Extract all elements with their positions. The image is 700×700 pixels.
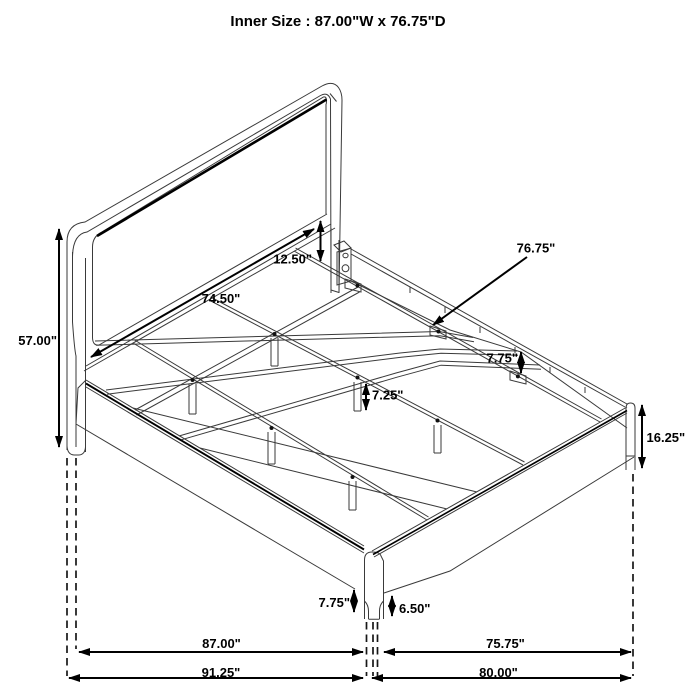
svg-text:7.75": 7.75" [487,351,518,366]
svg-text:87.00": 87.00" [202,636,241,651]
svg-text:Inner Size : 87.00"W x 76.75"D: Inner Size : 87.00"W x 76.75"D [230,13,445,30]
svg-text:16.25": 16.25" [647,430,686,445]
svg-text:75.75": 75.75" [486,636,525,651]
svg-text:91.25": 91.25" [202,665,241,680]
svg-text:12.50": 12.50" [273,252,312,267]
svg-text:6.50": 6.50" [399,601,430,616]
svg-text:7.75": 7.75" [319,595,350,610]
svg-text:74.50": 74.50" [202,291,241,306]
svg-text:57.00": 57.00" [18,333,57,348]
svg-text:7.25": 7.25" [372,388,403,403]
svg-text:80.00": 80.00" [479,665,518,680]
svg-text:76.75": 76.75" [517,241,556,256]
